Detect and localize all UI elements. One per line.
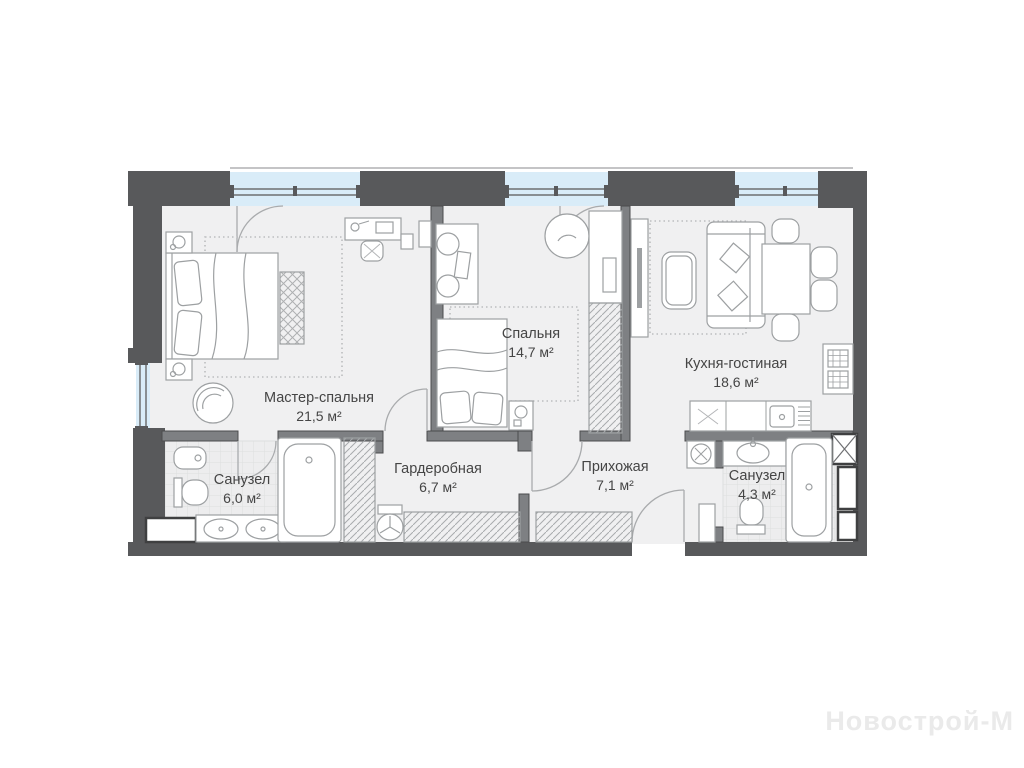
label-master-bedroom: Мастер-спальня: [264, 390, 374, 406]
master-nightstand-bottom: [166, 359, 192, 380]
toilet-bath1: [174, 478, 208, 507]
label-hallway: Прихожая: [581, 459, 648, 475]
coffee-table: [662, 252, 696, 309]
window-left-glass: [136, 363, 150, 428]
label-kitchen-living: Кухня-гостиная: [685, 356, 788, 372]
floor-plan-drawing: Мастер-спальня 21,5 м² Спальня 14,7 м² К…: [0, 0, 1024, 768]
washing-machine: [687, 441, 715, 468]
wall-stub-bedroom2-door: [518, 431, 532, 451]
master-nightstand-top: [166, 232, 192, 253]
sink-bath2: [723, 437, 786, 466]
bidet: [174, 447, 206, 469]
toilet-bath2: [737, 498, 765, 534]
wardrobe-rail-bottom: [404, 512, 520, 542]
label-bathroom1: Санузел: [214, 472, 271, 488]
master-desk-chair: [361, 241, 383, 261]
duct-shaft-x: [832, 434, 857, 464]
area-kitchen-living: 18,6 м²: [713, 374, 759, 390]
label-bedroom2: Спальня: [502, 326, 560, 342]
duct-shaft-left: [146, 518, 196, 542]
ceiling-fan-symbol: [377, 514, 403, 540]
bedroom2-desk: [436, 224, 478, 304]
wall-bath2-jamb-bottom: [715, 527, 723, 542]
duct-shaft-right1: [838, 467, 857, 509]
master-bench: [280, 272, 304, 344]
kitchen-counter: [690, 401, 811, 431]
wall-pier-top-right: [818, 171, 867, 208]
bedroom2-nightstand: [509, 401, 533, 430]
oven-column: [823, 344, 853, 394]
area-wardrobe: 6,7 м²: [419, 479, 457, 495]
door-bathroom2-leaf: [699, 504, 715, 542]
bedroom2-bed: [437, 319, 507, 427]
wall-left-step: [128, 348, 162, 363]
wall-bottom-right: [685, 542, 867, 556]
area-bathroom1: 6,0 м²: [223, 490, 261, 506]
bathtub-bath1: [278, 438, 341, 542]
floor-plan: Мастер-спальня 21,5 м² Спальня 14,7 м² К…: [0, 0, 1024, 768]
bathtub-bath2: [786, 438, 832, 542]
wall-bath2-jamb-top: [715, 441, 723, 468]
wall-pier-top-left: [128, 171, 230, 206]
wall-bottom-left: [128, 542, 632, 556]
bedroom2-shelf-unit: [589, 211, 622, 303]
wardrobe-rail-left: [344, 438, 375, 542]
master-bed: [166, 253, 278, 359]
label-bathroom2: Санузел: [729, 468, 786, 484]
double-sink-counter: [196, 515, 285, 542]
wall-pier-top-mid2: [608, 171, 735, 206]
watermark: Новострой-М: [825, 706, 1014, 736]
duct-shaft-right2: [838, 512, 857, 540]
sofa: [707, 222, 765, 328]
bedroom2-closet: [589, 303, 622, 433]
label-wardrobe: Гардеробная: [394, 461, 482, 477]
master-armchair: [193, 383, 233, 423]
wardrobe-box: [378, 505, 402, 514]
master-shelf: [419, 221, 431, 247]
wall-bath1-top-left: [162, 431, 238, 441]
wall-pier-top-mid1: [360, 171, 505, 206]
area-hallway: 7,1 м²: [596, 477, 634, 493]
wall-left-upper: [133, 206, 162, 356]
bedroom2-pouf: [545, 214, 589, 258]
wall-stub-master-door: [375, 441, 383, 453]
wall-bedroom2-bottom: [427, 431, 520, 441]
area-master-bedroom: 21,5 м²: [296, 408, 342, 424]
tv-console: [631, 219, 648, 337]
area-bedroom2: 14,7 м²: [508, 344, 554, 360]
hall-closet: [536, 512, 632, 542]
area-bathroom2: 4,3 м²: [738, 486, 776, 502]
